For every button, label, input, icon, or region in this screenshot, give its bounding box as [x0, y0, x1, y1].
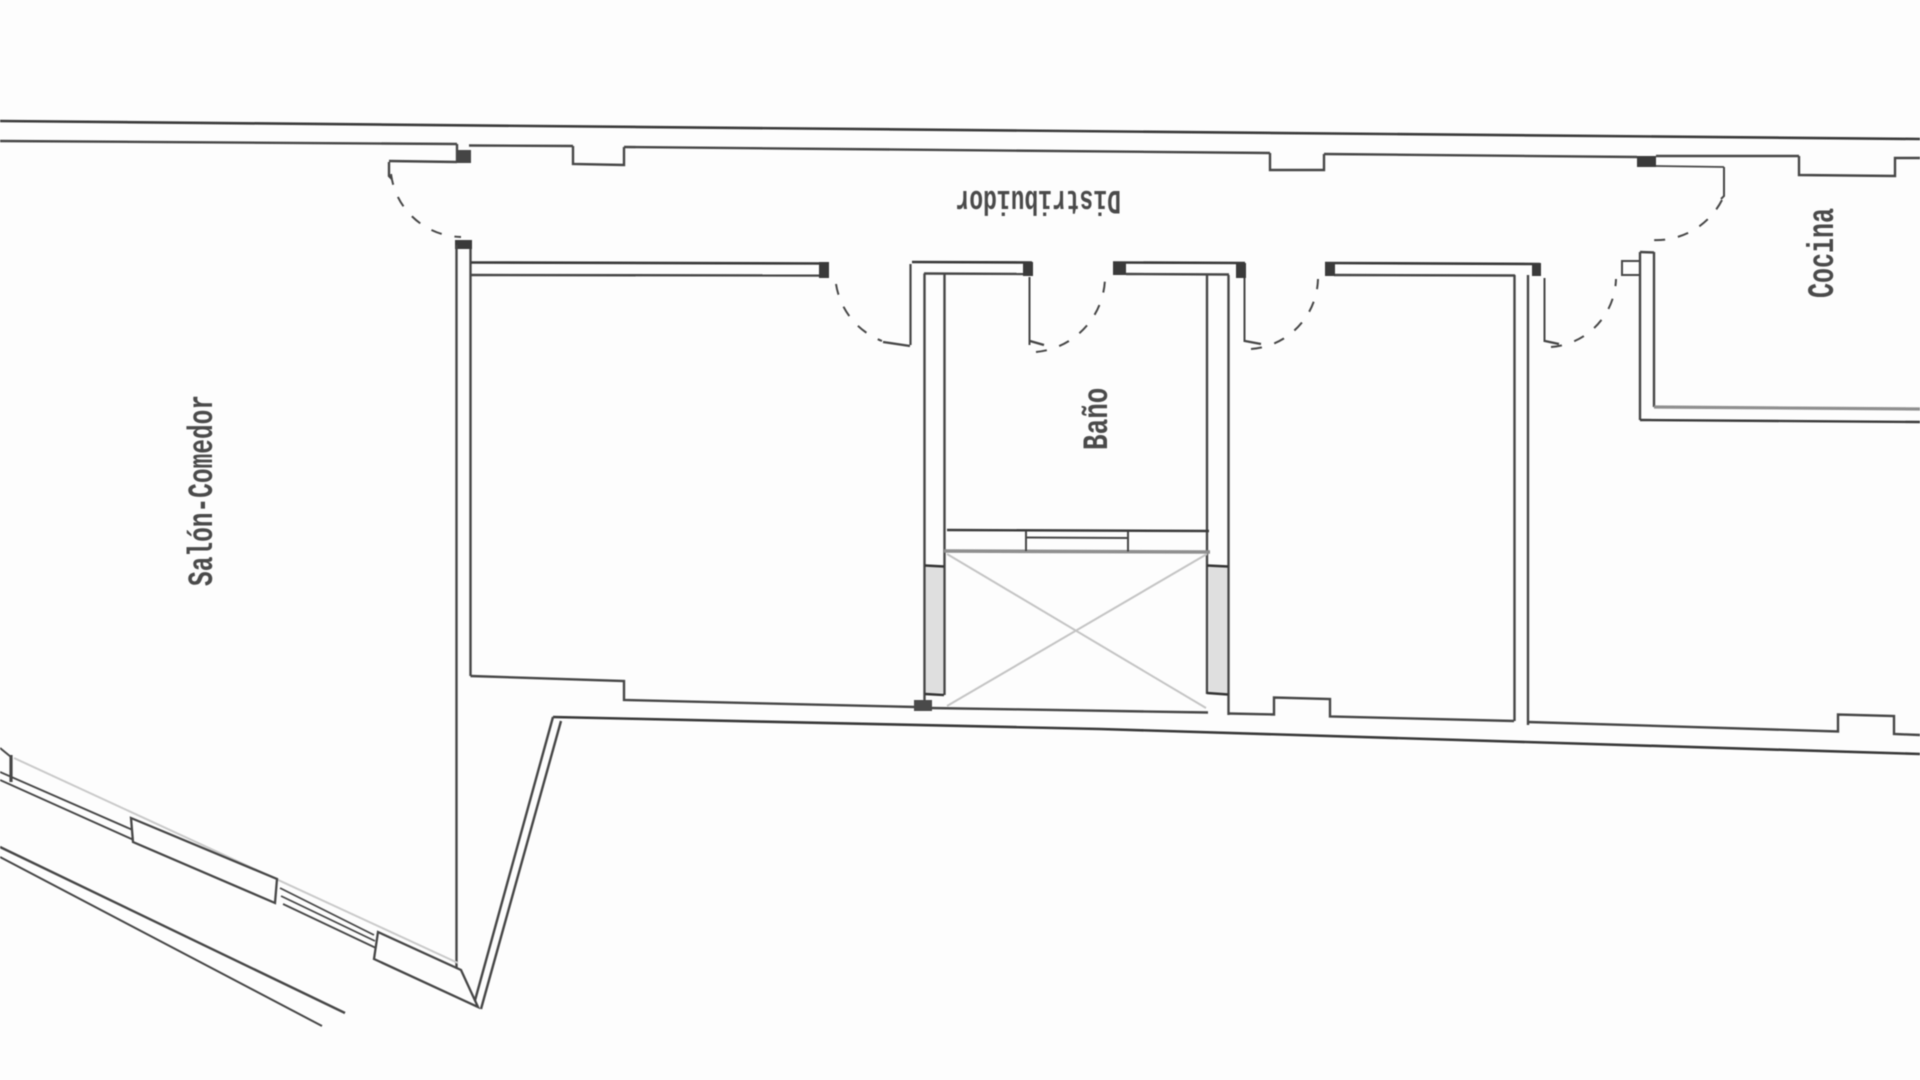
svg-text:Baño: Baño — [1079, 388, 1119, 450]
svg-text:Distribuidor: Distribuidor — [955, 180, 1121, 219]
svg-text:Cocina: Cocina — [1801, 208, 1845, 298]
svg-text:Salón-Comedor: Salón-Comedor — [184, 395, 224, 586]
